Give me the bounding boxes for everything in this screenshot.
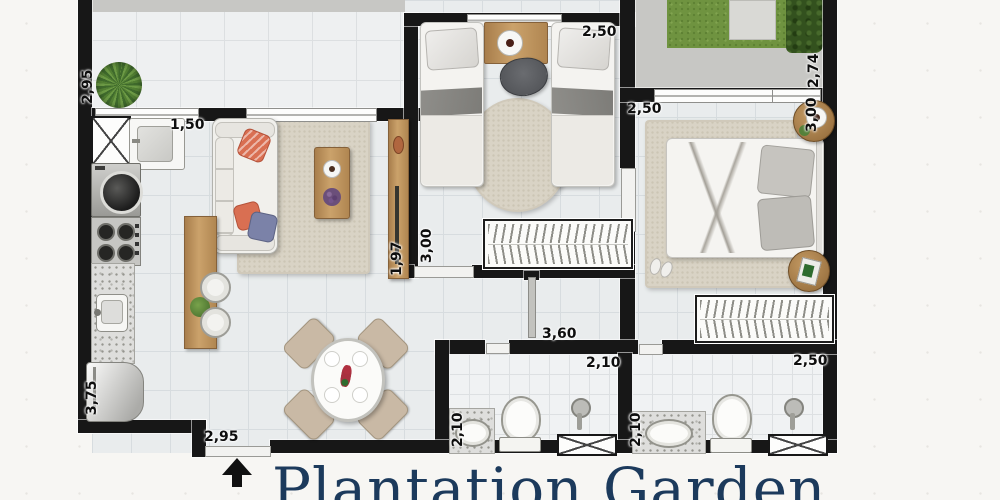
sofa (212, 118, 278, 254)
bathroom1-door (486, 343, 510, 354)
hallway-door-leaf (528, 277, 536, 338)
utility-shaft (91, 116, 131, 166)
bed-blanket (421, 115, 482, 185)
entrance-arrow-stem (232, 474, 242, 487)
single-bed (551, 22, 615, 187)
dimension-label: 1,97 (389, 241, 405, 276)
wardrobe-hangers (700, 300, 829, 318)
double-bed (666, 138, 824, 258)
bed-pillow (757, 144, 816, 198)
entrance-door (205, 446, 271, 457)
washing-machine-door (100, 171, 143, 214)
terrace-edge-band (92, 0, 405, 12)
stove-icon (91, 217, 141, 266)
coffee-cup-icon (329, 166, 335, 172)
laundry-faucet-icon (132, 139, 140, 143)
hedge (786, 0, 823, 53)
toilet-icon (712, 394, 752, 442)
wardrobe-hangers (488, 244, 628, 264)
bed-blanket-fold (552, 87, 613, 116)
dimension-label: 3,00 (419, 228, 435, 263)
toilet-icon (501, 396, 541, 442)
bathroom2-sink (645, 419, 693, 448)
desk-cup-icon (506, 39, 514, 47)
flower-vase-icon (323, 188, 341, 206)
dimension-label: 2,50 (627, 101, 662, 117)
dimension-label: 2,10 (450, 412, 466, 447)
kitchen-faucet-icon (94, 309, 101, 316)
kitchen-sink-basin (101, 300, 123, 324)
dimension-label: 2,95 (204, 429, 239, 445)
shaft-box (768, 434, 828, 456)
shower-stem (790, 413, 795, 430)
paving-pad (729, 0, 776, 40)
dimension-label: 2,95 (80, 69, 96, 104)
desk (484, 22, 548, 64)
toilet-tank (499, 437, 541, 452)
project-title: Plantation Garden (272, 460, 826, 500)
bed-pillow (425, 27, 480, 71)
dining-table (311, 338, 385, 422)
sofa-backrest (215, 137, 234, 236)
entrance-arrow-icon (222, 458, 252, 475)
dimension-label: 2,10 (628, 412, 644, 447)
master-wardrobe (695, 295, 834, 343)
bedroom2-wardrobe (483, 219, 633, 269)
single-bed (420, 22, 484, 187)
throw-pillow-blue (246, 210, 278, 243)
washing-machine-panel (95, 166, 105, 170)
dimension-label: 3,60 (542, 326, 577, 342)
laundry-tub-basin (137, 126, 173, 162)
shaft-box (557, 434, 617, 456)
dimension-label: 2,74 (806, 53, 822, 88)
coffee-table (314, 147, 350, 219)
dimension-label: 3,75 (84, 380, 100, 415)
kitchen-sink-icon (96, 294, 128, 332)
desk-plate (497, 30, 523, 56)
place-setting (324, 351, 340, 367)
wall-master-left-upper (620, 0, 635, 168)
stove-burner (117, 223, 135, 241)
bar-stool (200, 307, 231, 338)
wall-bath-top-b (509, 340, 638, 354)
coffee-table-plate (323, 160, 341, 178)
stove-burner (97, 223, 115, 241)
bed-duvet (669, 142, 757, 253)
master-bedroom-window (654, 89, 773, 103)
bar-stool (200, 272, 231, 303)
nightstand (788, 250, 830, 292)
bathroom2-door (639, 344, 663, 355)
shower-stem (577, 413, 582, 430)
stove-burner (97, 244, 115, 262)
place-setting (352, 387, 368, 403)
dimension-label: 2,50 (582, 24, 617, 40)
book-icon (796, 257, 821, 286)
bed-headboard (816, 141, 822, 254)
stove-burner (117, 244, 135, 262)
place-setting (324, 387, 340, 403)
bed-blanket (552, 115, 613, 185)
dimension-label: 1,50 (170, 117, 205, 133)
decor-vase-icon (393, 136, 404, 154)
terrace-plant-icon (96, 62, 142, 108)
floor-plan-canvas: 2,95 1,50 2,50 3,00 1,97 2,50 3,00 2,74 … (0, 0, 1000, 500)
wall-right (823, 0, 837, 453)
table-flowers-icon (339, 364, 353, 387)
wardrobe-hangers (488, 224, 628, 243)
toilet-tank (710, 438, 752, 453)
place-setting (352, 351, 368, 367)
stove-knobs (135, 224, 139, 258)
wardrobe-hangers (700, 319, 829, 338)
bedroom2-door (414, 266, 474, 278)
bed-blanket-fold (421, 87, 482, 116)
wall-bathroom1-left (435, 340, 449, 453)
dimension-label: 2,10 (586, 355, 621, 371)
dimension-label: 2,50 (793, 353, 828, 369)
dimension-label: 3,00 (804, 97, 820, 132)
bed-pillow (757, 195, 815, 252)
washing-machine-icon (91, 163, 141, 217)
